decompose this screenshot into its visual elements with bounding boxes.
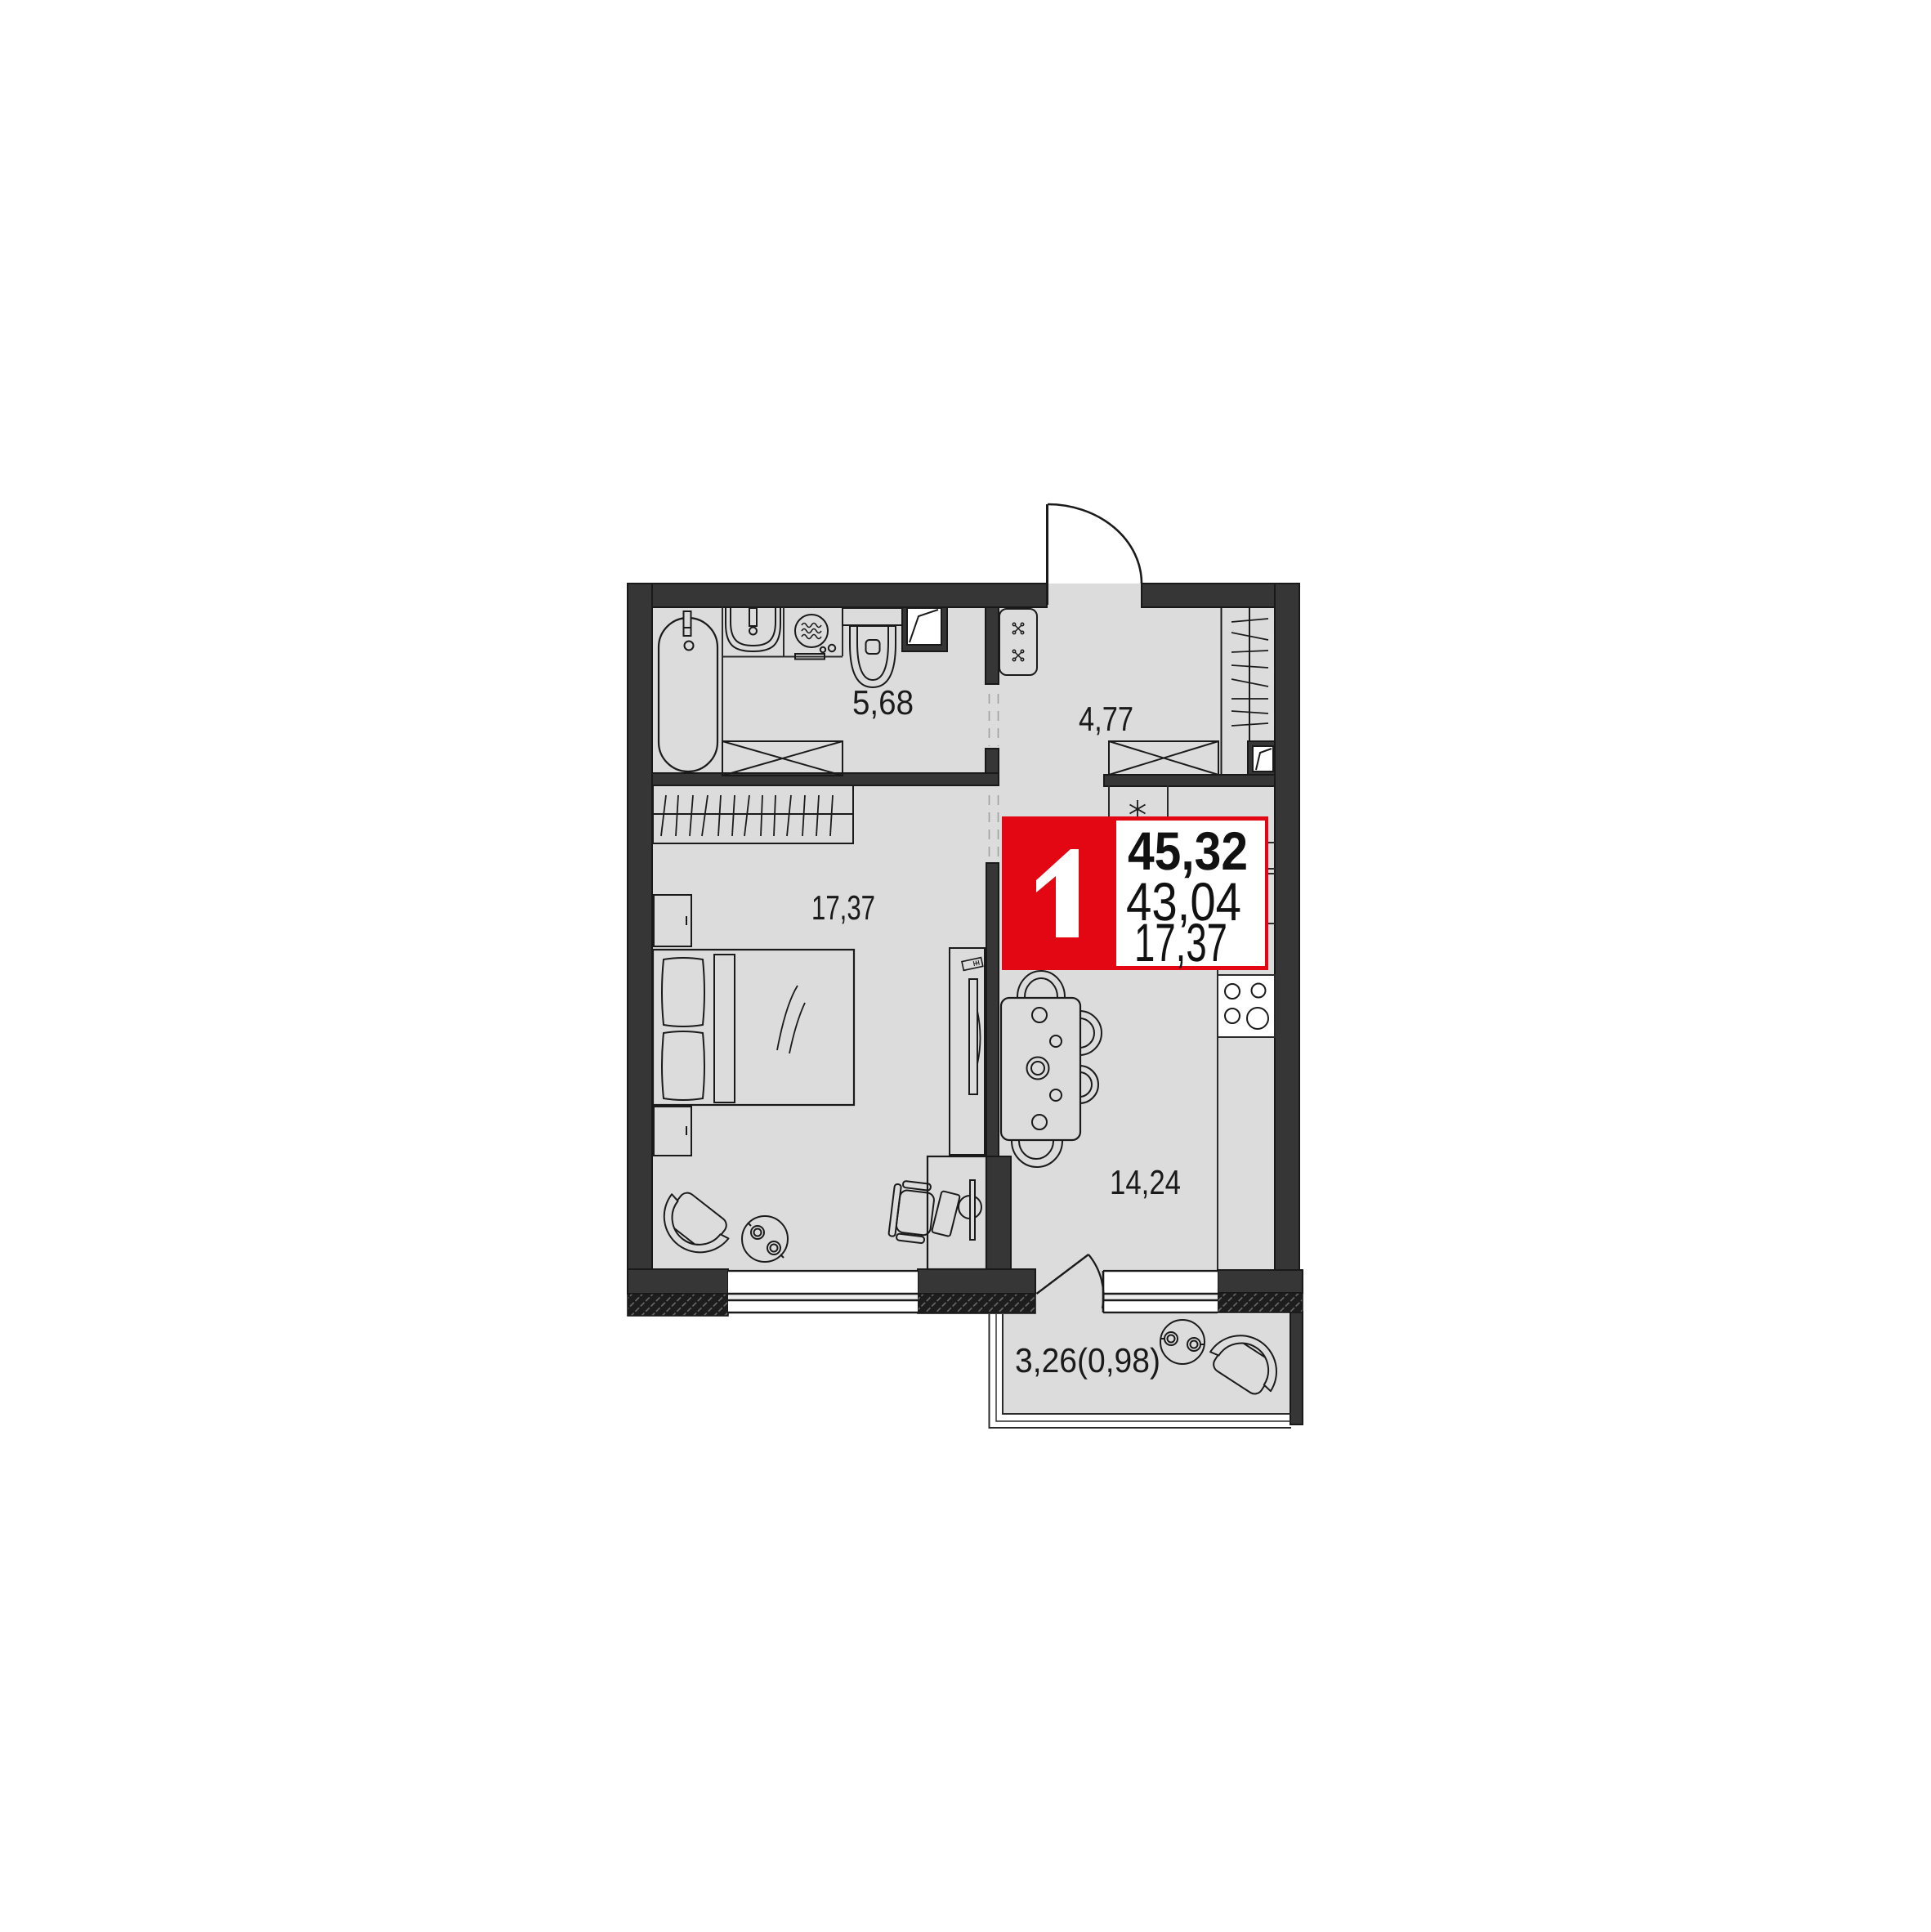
svg-text:17,37: 17,37 [811,888,875,927]
svg-text:4,77: 4,77 [1079,700,1133,738]
svg-text:3,26(0,98): 3,26(0,98) [1015,1341,1160,1380]
svg-text:5,68: 5,68 [852,683,914,722]
svg-text:17,37: 17,37 [1134,912,1227,973]
svg-text:14,24: 14,24 [1110,1163,1181,1201]
